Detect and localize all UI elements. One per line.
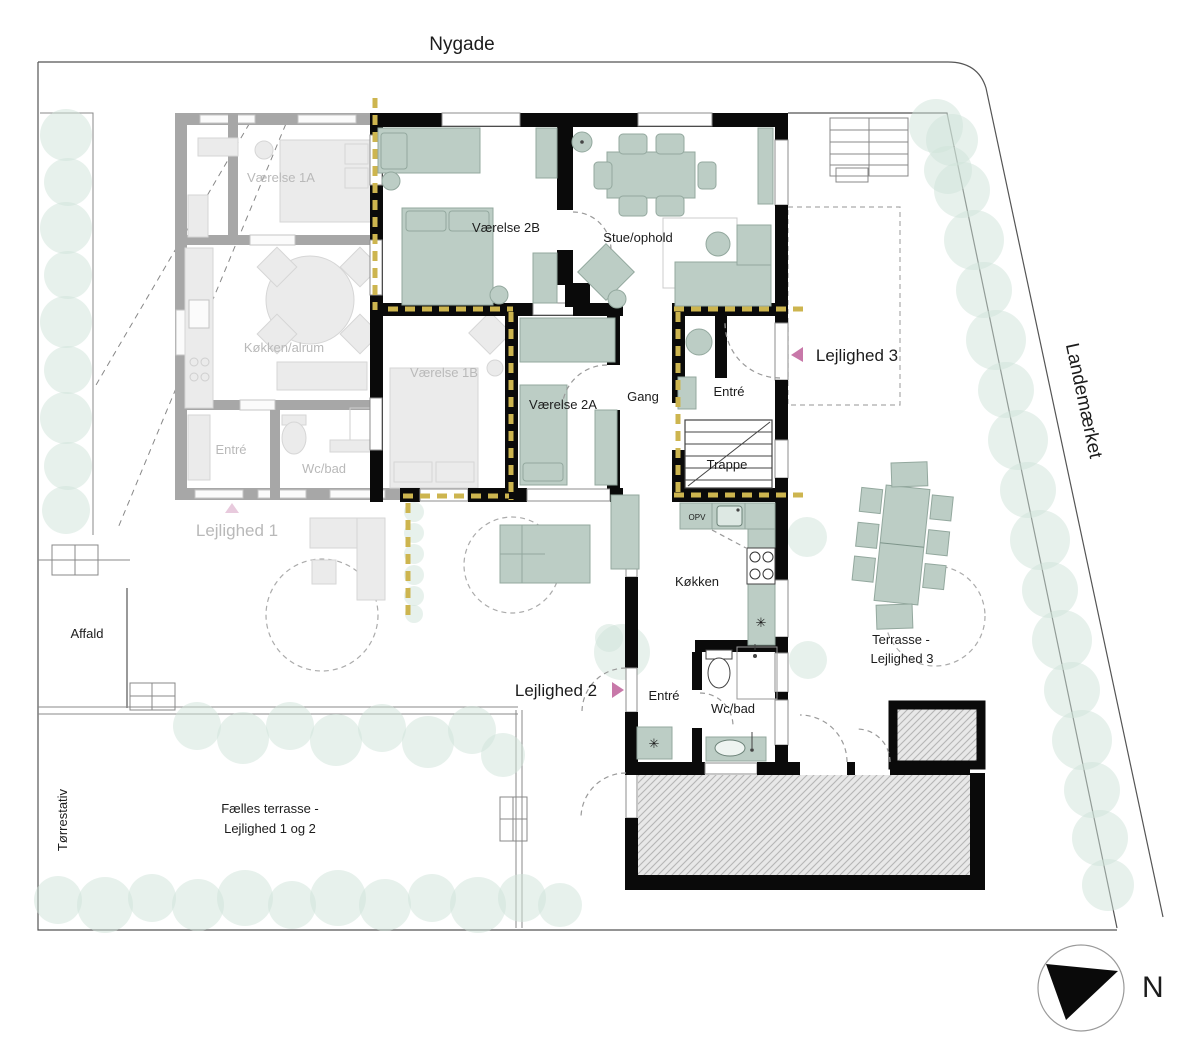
upper-floor-outline [788, 207, 900, 405]
north-letter: N [1142, 971, 1164, 1004]
room-label-wcbad-1: Wc/bad [302, 461, 346, 476]
appliance-label-opv: OPV [689, 513, 707, 522]
dining-table [607, 152, 695, 198]
room-label-entre-1: Entré [215, 442, 246, 457]
apartment-3-entry-door [775, 323, 788, 380]
outdoor-dining-set [847, 455, 956, 635]
floor-plan-drawing: ✳ ✳ [0, 0, 1200, 1060]
street-label-landemaerket: Landemærket [1061, 341, 1106, 461]
small-deck [893, 705, 981, 765]
room-label-stue: Stue/ophold [603, 230, 672, 245]
label-faelles-terrasse-1: Fælles terrasse - [221, 801, 319, 816]
room-label-trappe: Trappe [707, 457, 748, 472]
label-affald: Affald [70, 626, 103, 641]
room-label-vaerelse-2b: Værelse 2B [472, 220, 540, 235]
label-terrasse-3-line1: Terrasse - [872, 632, 930, 647]
freezer-icon: ✳ [756, 615, 767, 630]
room-label-wcbad-2: Wc/bad [711, 701, 755, 716]
street-label-nygade: Nygade [429, 34, 495, 55]
room-label-vaerelse-2a: Værelse 2A [529, 397, 597, 412]
apartment-2-label: Lejlighed 2 [515, 681, 597, 700]
entrance-arrow-1-faded [225, 503, 239, 513]
room-label-koekken-2: Køkken [675, 574, 719, 589]
room-label-vaerelse-1b: Værelse 1B [410, 365, 478, 380]
north-arrow: N [1038, 945, 1164, 1031]
sofa [675, 262, 771, 306]
apartment-1-label: Lejlighed 1 [196, 521, 278, 540]
entrance-arrow-3 [791, 347, 803, 362]
room-label-koekken-alrum: Køkken/alrum [244, 340, 324, 355]
label-terrasse-3-line2: Lejlighed 3 [871, 651, 934, 666]
entrance-arrow-2 [612, 682, 624, 698]
room-label-gang: Gang [627, 389, 659, 404]
room-label-vaerelse-1a: Værelse 1A [247, 170, 315, 185]
north-arrow-icon [1046, 964, 1118, 1020]
wardrobe-2a [520, 318, 615, 362]
label-toerrestativ: Tørrestativ [55, 788, 70, 851]
apartment-3-label: Lejlighed 3 [816, 346, 898, 365]
room-label-entre-3: Entré [713, 384, 744, 399]
label-faelles-terrasse-2: Lejlighed 1 og 2 [224, 821, 316, 836]
stairs [685, 420, 772, 488]
hatched-terraces [638, 705, 981, 875]
floor-plan-page: ✳ ✳ [0, 0, 1200, 1060]
bike-rack [830, 118, 908, 182]
toilet [708, 658, 730, 688]
room-label-entre-2: Entré [648, 688, 679, 703]
apartment-2-entry-door [626, 668, 637, 712]
washer-icon: ✳ [649, 736, 660, 751]
terrace-gate [626, 772, 637, 818]
